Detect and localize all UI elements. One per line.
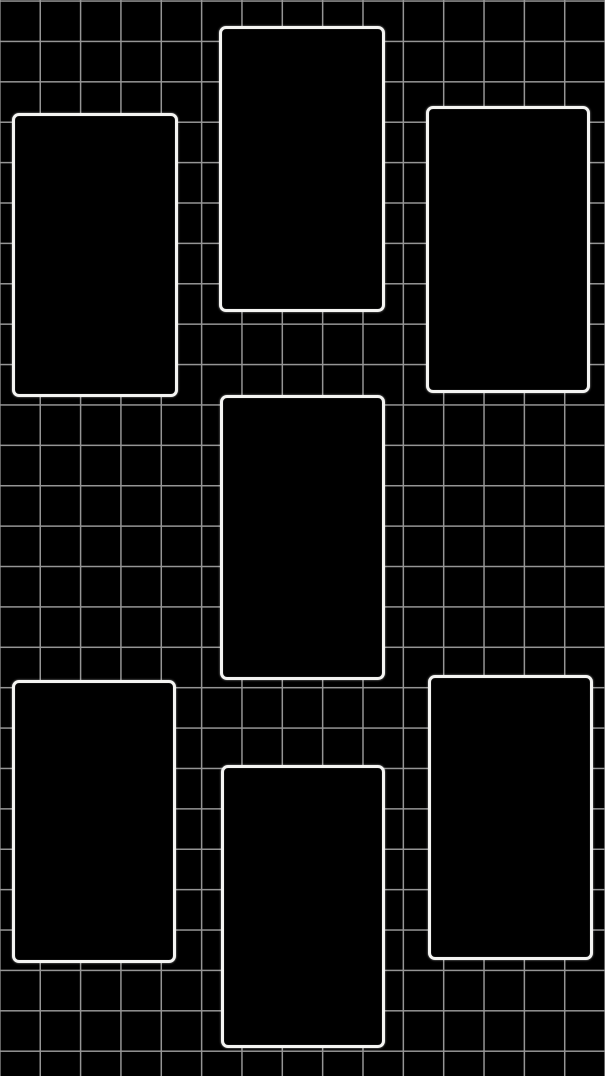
- frame-bottom-center: [221, 765, 385, 1048]
- frame-top-right: [426, 106, 590, 393]
- wallpaper-canvas: [0, 0, 605, 1076]
- frame-top-left: [12, 113, 178, 397]
- frame-top-center: [219, 26, 385, 312]
- frame-bottom-right: [428, 675, 593, 960]
- frame-bottom-left: [12, 680, 176, 963]
- frame-middle-center: [220, 395, 385, 680]
